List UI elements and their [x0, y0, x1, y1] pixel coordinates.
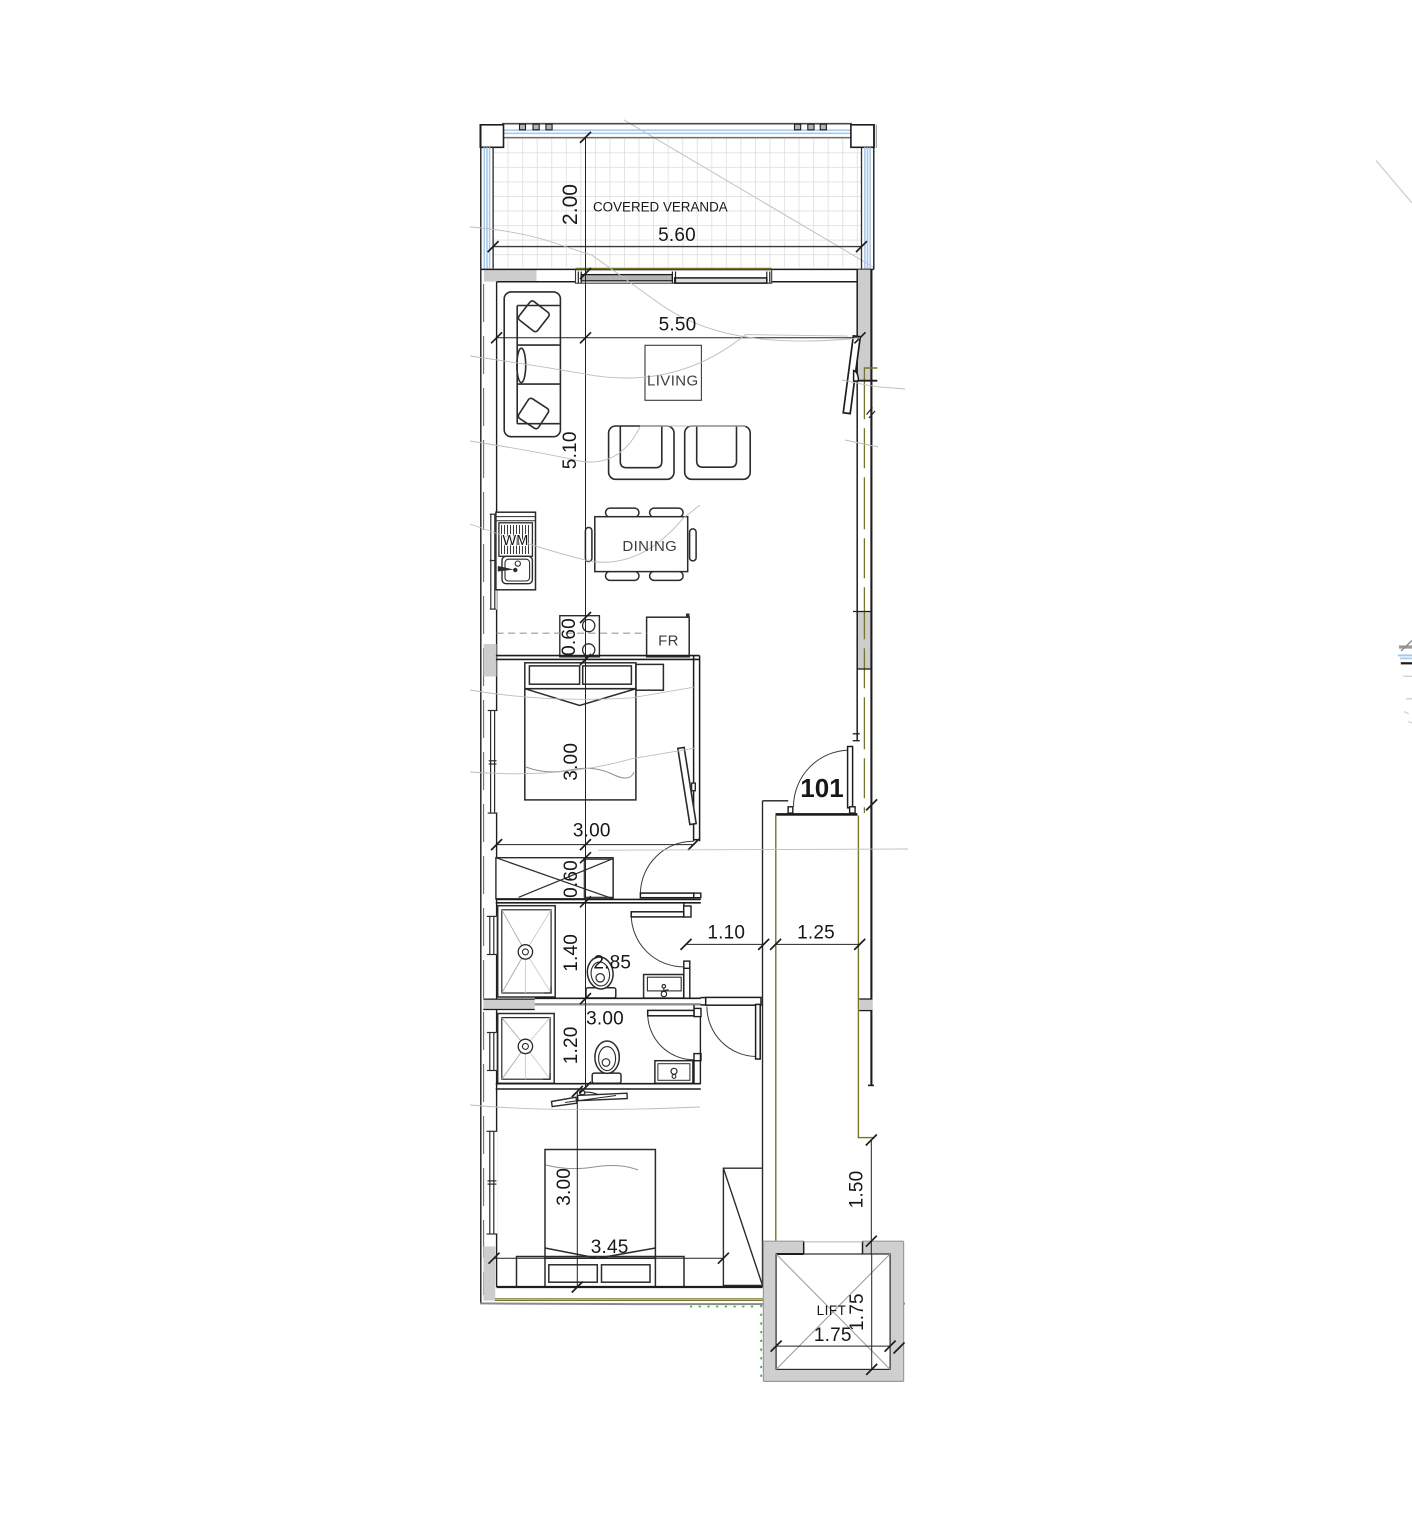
svg-text:1.50: 1.50	[846, 1171, 867, 1209]
svg-text:1.75: 1.75	[814, 1325, 852, 1346]
svg-text:3.00: 3.00	[554, 1168, 575, 1206]
svg-text:1.20: 1.20	[561, 1027, 582, 1065]
svg-text:1.25: 1.25	[797, 923, 835, 944]
svg-text:3.00: 3.00	[586, 1009, 624, 1030]
svg-text:3.00: 3.00	[573, 820, 611, 841]
svg-text:WM: WM	[503, 533, 529, 549]
svg-text:0.60: 0.60	[561, 860, 582, 898]
svg-text:1.40: 1.40	[561, 934, 582, 972]
svg-text:101: 101	[800, 773, 843, 803]
svg-text:0.60: 0.60	[559, 618, 580, 656]
svg-text:DINING: DINING	[622, 538, 677, 555]
svg-text:3.00: 3.00	[561, 743, 582, 781]
svg-text:2.00: 2.00	[559, 184, 582, 225]
svg-text:LIVING: LIVING	[647, 373, 699, 390]
svg-text:LIFT: LIFT	[817, 1303, 847, 1318]
svg-text:1.10: 1.10	[707, 923, 745, 944]
svg-text:5.50: 5.50	[659, 315, 697, 336]
svg-text:1.75: 1.75	[847, 1293, 868, 1331]
svg-text:COVERED VERANDA: COVERED VERANDA	[593, 200, 728, 215]
svg-text:FR: FR	[658, 633, 679, 650]
svg-text:2.85: 2.85	[593, 952, 631, 973]
svg-text:5.60: 5.60	[658, 225, 696, 246]
svg-text:5.10: 5.10	[560, 431, 581, 469]
svg-text:3.45: 3.45	[591, 1237, 629, 1258]
